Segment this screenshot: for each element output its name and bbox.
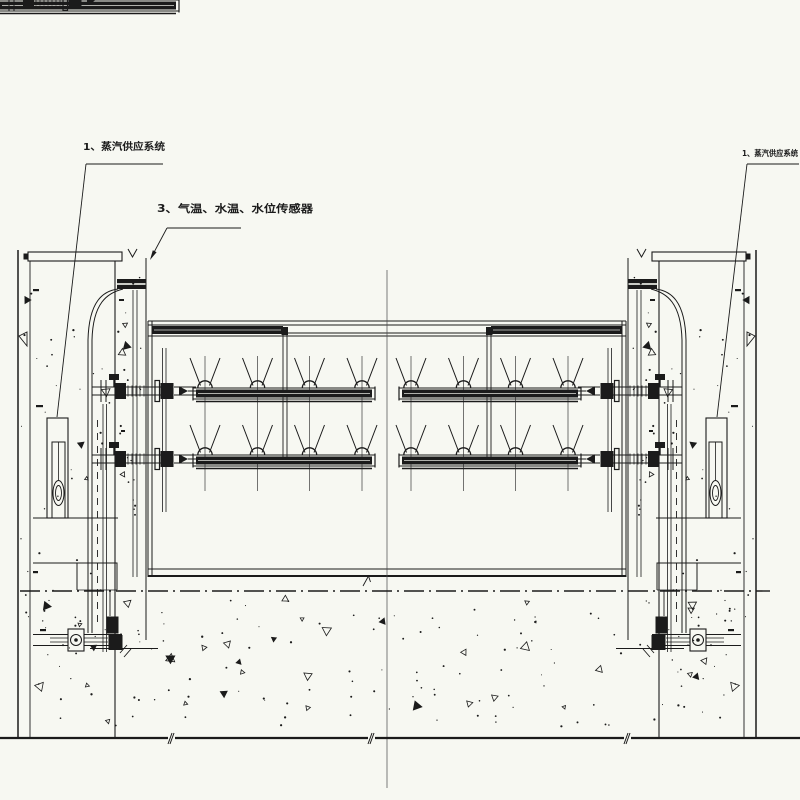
check-mark	[128, 249, 137, 257]
floor	[0, 591, 800, 744]
aggregate-mark	[19, 332, 27, 346]
drawing-canvas: 1、蒸汽供应系统 3、气温、水温、水位传感器 1、蒸汽供应系统	[0, 0, 800, 800]
label-steam-supply-left: 1、蒸汽供应系统	[83, 140, 165, 153]
right-wall-pier	[578, 249, 756, 738]
nozzle-axis-lines	[205, 356, 568, 491]
spray-row2-left	[190, 425, 377, 469]
label-sensors: 3、气温、水温、水位传感器	[157, 202, 314, 215]
leader-arrow-icon	[150, 250, 157, 260]
annotations: 1、蒸汽供应系统 3、气温、水温、水位传感器 1、蒸汽供应系统	[57, 140, 799, 417]
gate-steam-heating-drawing: 1、蒸汽供应系统 3、气温、水温、水位传感器 1、蒸汽供应系统	[0, 0, 800, 800]
concrete-aggregate	[25, 595, 735, 727]
spray-row2-right	[396, 425, 583, 469]
steam-supply-unit	[47, 418, 68, 518]
spray-row1-left	[190, 358, 377, 402]
label-steam-supply-right: 1、蒸汽供应系统	[742, 148, 798, 158]
steam-pipe-flange	[117, 279, 146, 283]
leader-line-left	[57, 164, 86, 417]
left-wall-pier	[18, 249, 196, 738]
spray-row1-right	[396, 358, 583, 402]
leader-line-right	[717, 164, 747, 417]
